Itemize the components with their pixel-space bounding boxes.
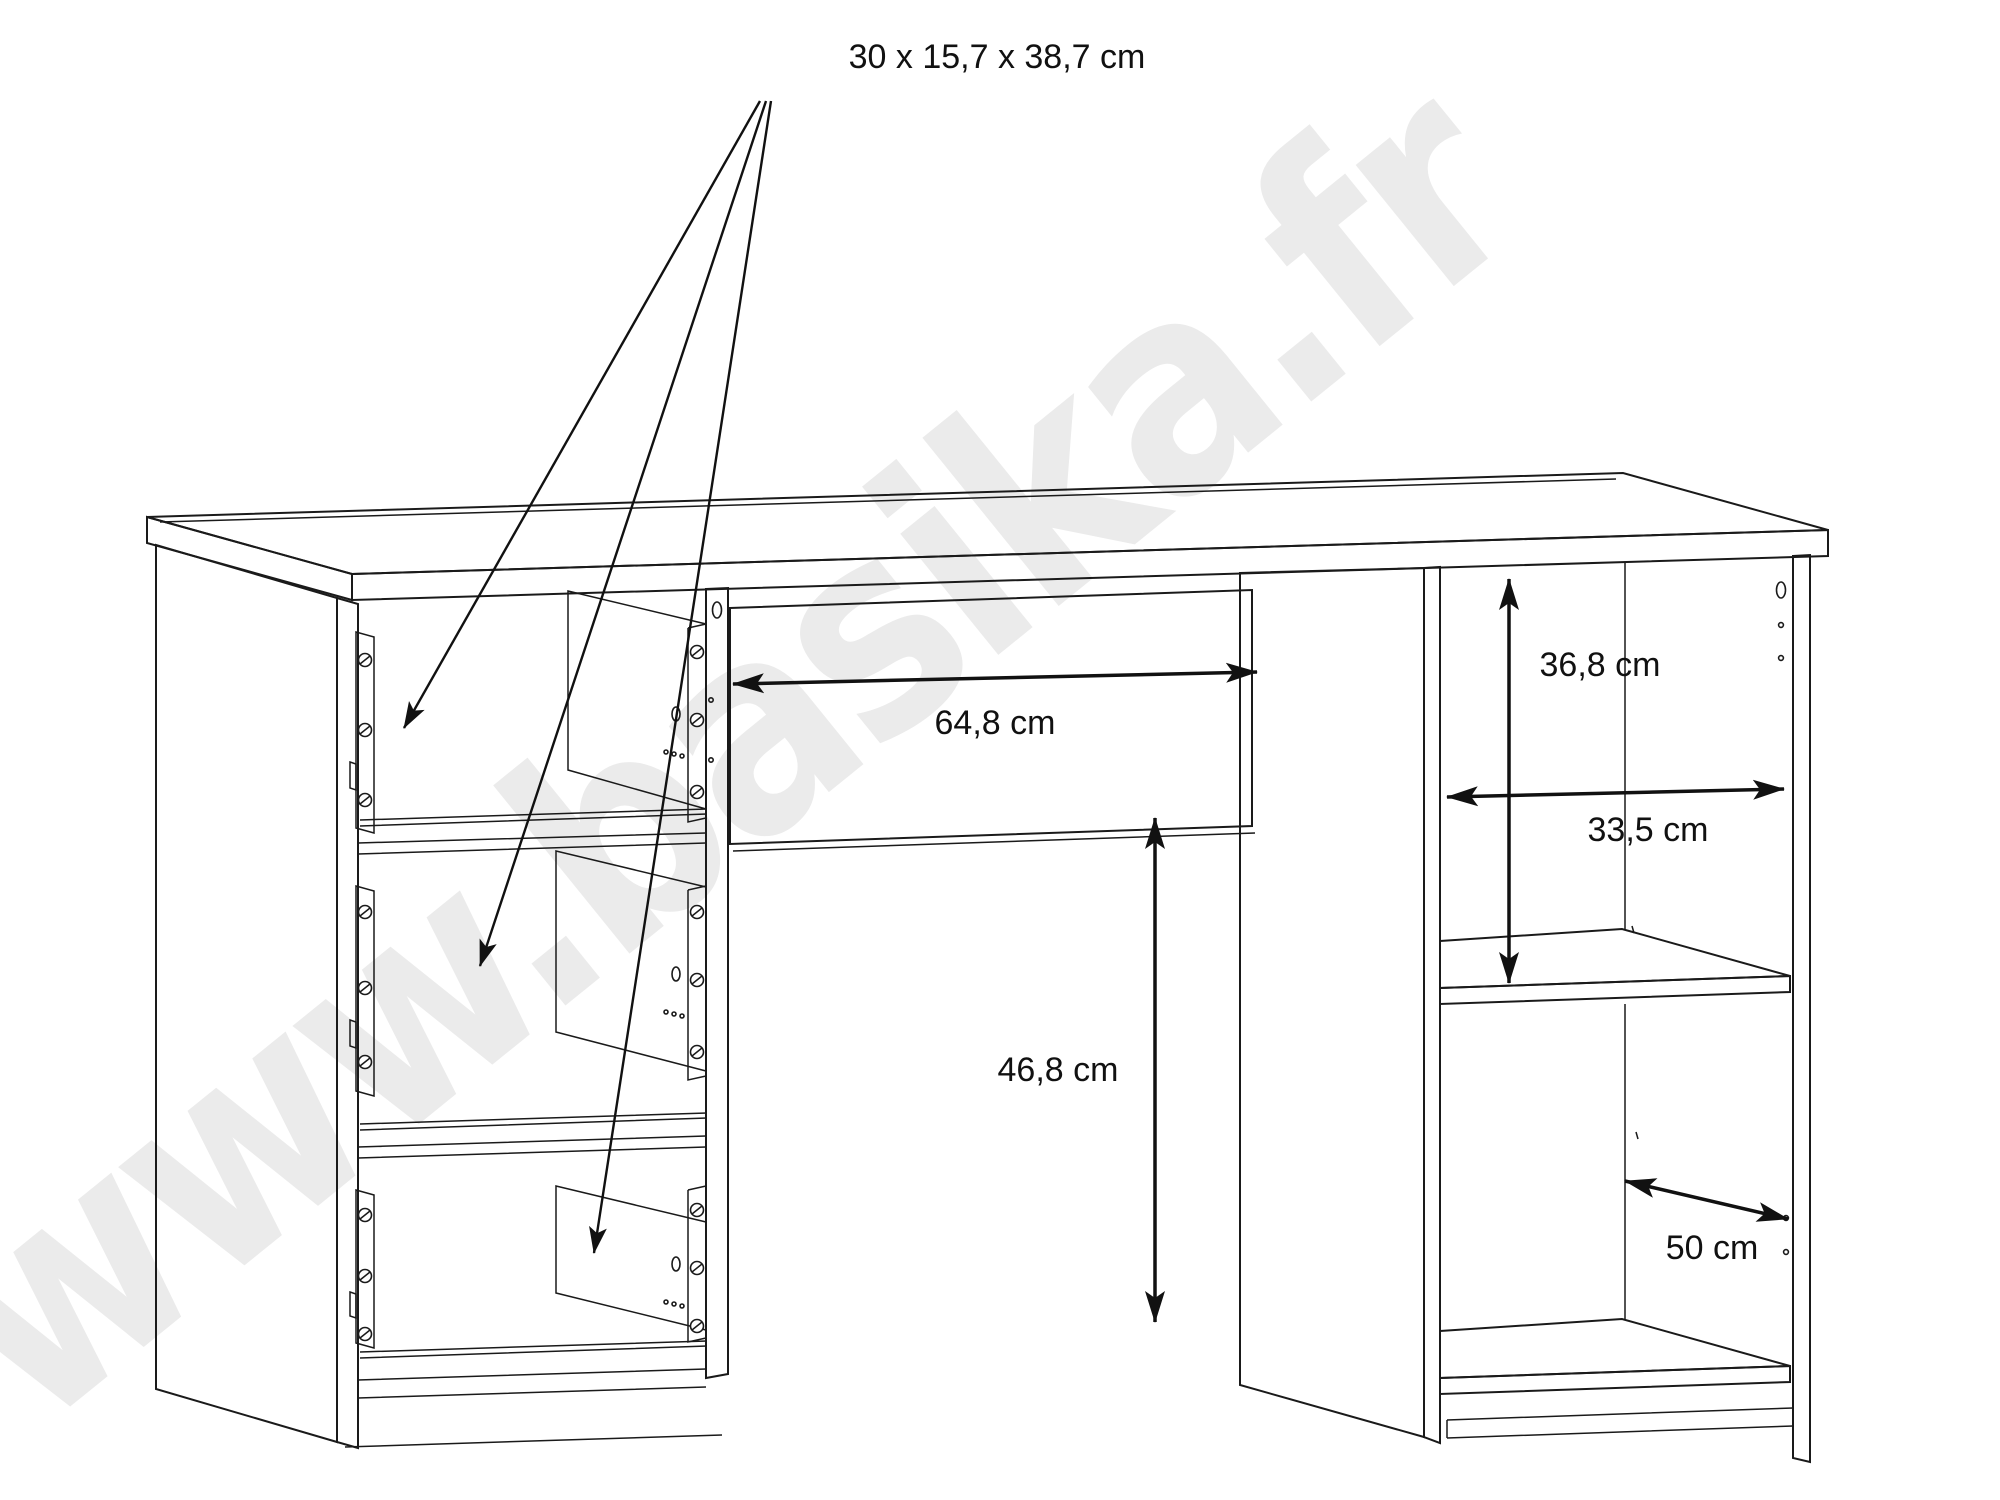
dim-label-compartment-depth: 50 cm xyxy=(1666,1229,1759,1267)
dim-compartment-height: 36,8 cm xyxy=(1509,579,1660,983)
dim-arrow-compartment-width xyxy=(1447,789,1784,797)
right-pedestal-left-wall xyxy=(1240,568,1424,1437)
watermark-text: www.basika.fr xyxy=(0,15,1578,1488)
dim-label-under-drawer-height: 46,8 cm xyxy=(998,1051,1119,1089)
right-pedestal xyxy=(1240,555,1810,1462)
furniture-dimension-diagram: www.basika.fr xyxy=(0,0,2000,1500)
right-side-panel xyxy=(1793,555,1810,1462)
diagram-canvas: www.basika.fr xyxy=(0,0,2000,1500)
bottom-shelf xyxy=(1440,1319,1793,1438)
dim-label-compartment-height: 36,8 cm xyxy=(1540,646,1661,684)
dim-arrow-compartment-depth xyxy=(1625,1181,1788,1219)
dim-label-knee-width: 64,8 cm xyxy=(935,704,1056,742)
dim-compartment-depth: 50 cm xyxy=(1625,1181,1788,1267)
dim-label-compartment-width: 33,5 cm xyxy=(1588,811,1709,849)
dim-compartment-width: 33,5 cm xyxy=(1447,789,1784,849)
dim-under-drawer-height: 46,8 cm xyxy=(998,818,1155,1322)
left-pedestal-base xyxy=(345,1369,722,1447)
drawer-size-label: 30 x 15,7 x 38,7 cm xyxy=(849,38,1146,76)
middle-shelf xyxy=(1440,929,1790,1004)
